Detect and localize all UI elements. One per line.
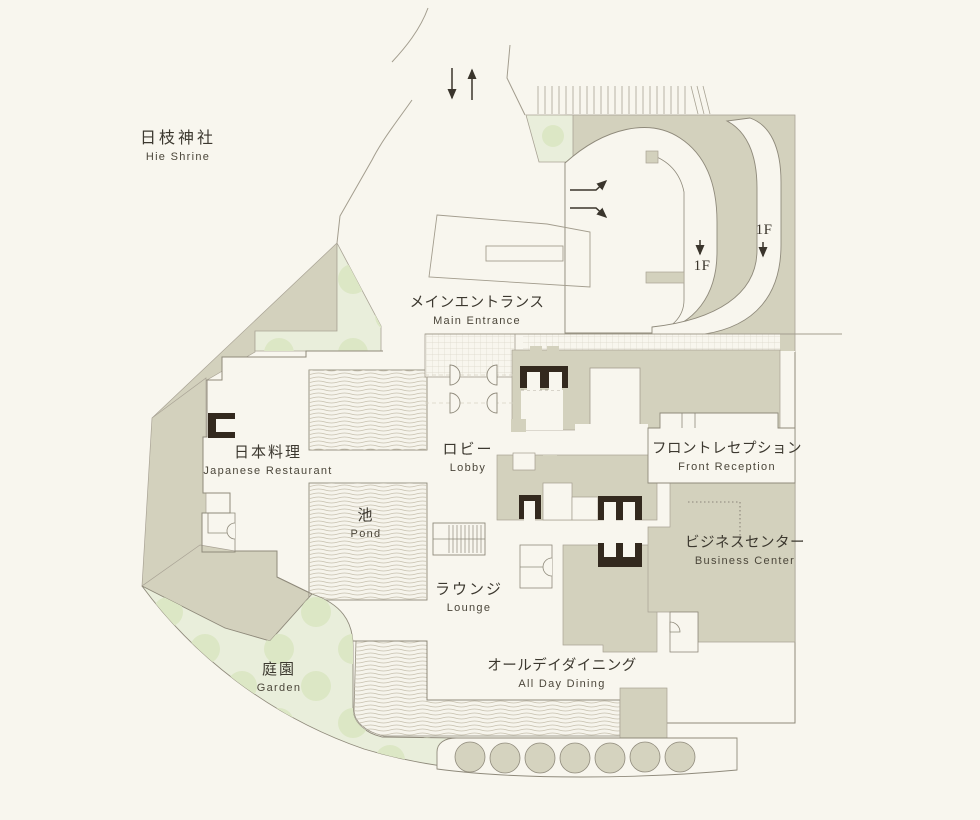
- label-business-center-en: Business Center: [685, 555, 805, 567]
- label-japanese-restaurant-jp: 日本料理: [203, 441, 332, 462]
- driveway-loop-road: [565, 128, 717, 333]
- label-main-entrance: メインエントランス Main Entrance: [410, 291, 545, 327]
- promenade-tree-icon: [665, 742, 695, 772]
- core-notch: [575, 424, 648, 432]
- elevator-alcove: [521, 390, 563, 430]
- label-japanese-restaurant: 日本料理 Japanese Restaurant: [203, 441, 332, 477]
- floor-map: 日枝神社 Hie Shrine メインエントランス Main Entrance …: [0, 0, 980, 820]
- label-front-reception: フロントレセプション Front Reception: [652, 437, 802, 473]
- label-japanese-restaurant-en: Japanese Restaurant: [203, 465, 332, 477]
- label-main-entrance-jp: メインエントランス: [410, 291, 545, 312]
- entry-planter-tree: [542, 125, 564, 147]
- walkway-post-a: [530, 346, 542, 354]
- promenade-tree-icon: [630, 742, 660, 772]
- label-lobby-jp: ロビー: [442, 438, 493, 459]
- label-all-day-dining-jp: オールデイダイニング: [487, 654, 636, 675]
- loop-island-post: [646, 151, 658, 163]
- lobby-planter-a: [511, 419, 526, 432]
- mid-core-room-a: [543, 483, 572, 520]
- label-hie-shrine: 日枝神社 Hie Shrine: [140, 124, 216, 163]
- label-lobby: ロビー Lobby: [442, 438, 493, 474]
- lounge-stairs: [433, 523, 485, 555]
- lobby-table: [513, 453, 535, 470]
- promenade-tree-icon: [490, 743, 520, 773]
- label-pond-jp: 池: [351, 504, 382, 525]
- label-garden: 庭園 Garden: [257, 658, 302, 694]
- label-pond: 池 Pond: [351, 504, 382, 540]
- floor-map-drawing: [0, 0, 980, 820]
- lobby-planter-b: [543, 455, 557, 466]
- north-core-room: [590, 368, 640, 430]
- promenade-tree-icon: [455, 742, 485, 772]
- label-all-day-dining: オールデイダイニング All Day Dining: [487, 654, 636, 690]
- label-hie-shrine-jp: 日枝神社: [140, 124, 216, 148]
- porte-cochere-block: [646, 272, 684, 283]
- tree-promenade: [437, 738, 737, 777]
- label-business-center: ビジネスセンター Business Center: [685, 531, 805, 567]
- label-front-reception-en: Front Reception: [652, 461, 802, 473]
- label-garden-jp: 庭園: [257, 658, 302, 679]
- label-garden-en: Garden: [257, 682, 302, 694]
- label-lounge-jp: ラウンジ: [435, 578, 503, 599]
- label-pond-en: Pond: [351, 528, 382, 540]
- label-hie-shrine-en: Hie Shrine: [140, 151, 216, 163]
- label-business-center-jp: ビジネスセンター: [685, 531, 805, 552]
- label-lobby-en: Lobby: [442, 462, 493, 474]
- label-front-reception-jp: フロントレセプション: [652, 437, 802, 458]
- label-main-entrance-en: Main Entrance: [410, 315, 545, 327]
- label-lounge-en: Lounge: [435, 602, 503, 614]
- promenade-tree-icon: [595, 743, 625, 773]
- floor-marker-outer: 1F: [756, 222, 773, 239]
- walkway-post-b: [547, 346, 559, 354]
- terrace-block: [620, 688, 667, 740]
- floor-marker-inner: 1F: [694, 258, 711, 275]
- driveway-area: [526, 86, 795, 352]
- mid-core-room-b: [572, 497, 598, 520]
- label-all-day-dining-en: All Day Dining: [487, 678, 636, 690]
- promenade-tree-icon: [560, 743, 590, 773]
- label-lounge: ラウンジ Lounge: [435, 578, 503, 614]
- promenade-tree-icon: [525, 743, 555, 773]
